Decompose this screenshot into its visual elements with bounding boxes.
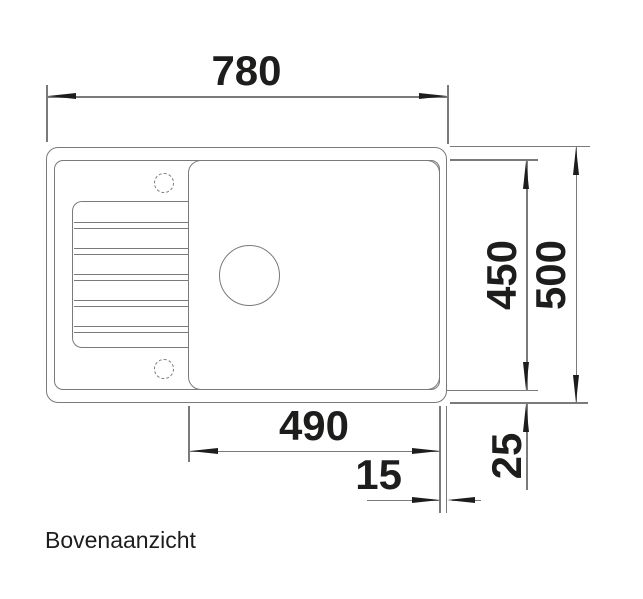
dimension-line (526, 160, 528, 390)
arrowhead-left (48, 93, 76, 99)
drainboard-groove (74, 248, 189, 255)
drainboard-groove (74, 326, 189, 333)
drainboard-groove (74, 300, 189, 307)
tap-hole-top (154, 173, 174, 193)
dim-500-label: 500 (529, 215, 575, 335)
dim-780-label: 780 (46, 49, 447, 93)
arrowhead-right (412, 448, 440, 454)
view-caption: Bovenaanzicht (45, 527, 196, 553)
arrowhead-left (190, 448, 218, 454)
extension-line (446, 390, 538, 392)
arrowhead-up (573, 147, 579, 175)
drainboard-groove (74, 274, 189, 281)
dim-490-label: 490 (188, 404, 440, 448)
arrowhead-left (447, 497, 475, 503)
dim-450-label: 450 (480, 215, 526, 335)
extension-line (447, 85, 449, 144)
dim-15-label: 15 (340, 453, 402, 497)
arrowhead-right (412, 497, 440, 503)
arrowhead-down (573, 375, 579, 403)
arrowhead-up (523, 161, 529, 189)
dim-25-label: 25 (485, 426, 531, 486)
arrowhead-down (523, 362, 529, 390)
extension-line (450, 146, 590, 148)
dimension-line (47, 96, 448, 98)
drainboard-groove (74, 222, 189, 229)
arrowhead-right (419, 93, 447, 99)
dimension-line (576, 146, 578, 403)
drain-hole (219, 245, 280, 306)
sink-top-view-drawing: 780 500 450 25 490 1 (0, 0, 643, 599)
tap-hole-bottom (154, 359, 174, 379)
extension-line (450, 402, 588, 404)
